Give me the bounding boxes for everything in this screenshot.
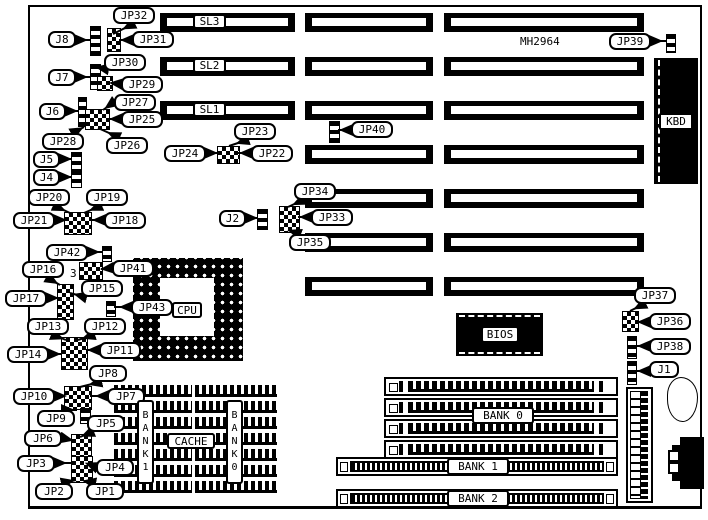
jumper-jp42 (102, 246, 112, 262)
label-j4: J4 (33, 169, 60, 186)
label-jp16: JP16 (22, 261, 64, 278)
isa-slot-segment (305, 277, 433, 296)
isa-slot-segment (444, 57, 644, 76)
chip-marking-mh2964: MH2964 (520, 36, 560, 48)
isa-slot-segment (444, 101, 644, 120)
label-jp36: JP36 (649, 313, 691, 330)
label-jp19: JP19 (86, 189, 128, 206)
jumper-jp31-jp32 (107, 28, 121, 52)
label-j5: J5 (33, 151, 60, 168)
jumper-jp29-jp30 (97, 76, 113, 91)
label-jp8: JP8 (89, 365, 127, 382)
label-jp9: JP9 (37, 410, 75, 427)
label-jp34: JP34 (294, 183, 336, 200)
isa-slot-segment (444, 13, 644, 32)
jumper-j1 (627, 361, 637, 385)
label-jp40: JP40 (351, 121, 393, 138)
jumper-jp39 (666, 34, 676, 53)
label-jp35: JP35 (289, 234, 331, 251)
isa-slot-segment (444, 277, 644, 296)
isa-slot-segment (305, 13, 433, 32)
label-jp27: JP27 (114, 94, 156, 111)
power-connector (626, 387, 653, 503)
jumper-jp36-jp37 (622, 311, 639, 332)
label-jp15: JP15 (81, 280, 123, 297)
label-bios: BIOS (481, 326, 519, 343)
label-jp24: JP24 (164, 145, 206, 162)
isa-slot-segment (160, 101, 295, 120)
jumper-jp22-jp24 (217, 146, 240, 164)
label-bank2: BANK 2 (447, 490, 509, 507)
label-j6: J6 (39, 103, 66, 120)
jumper-jp11-jp14 (61, 337, 88, 370)
label-jp20: JP20 (28, 189, 70, 206)
label-jp37: JP37 (634, 287, 676, 304)
jumper-jp33-jp35 (279, 206, 300, 233)
jumper-jp25-jp28 (85, 109, 110, 130)
isa-slot-segment (160, 13, 295, 32)
label-sl2: SL2 (193, 58, 226, 73)
label-jp12: JP12 (84, 318, 126, 335)
jumper-j8 (90, 26, 101, 56)
label-bank1: BANK 1 (447, 458, 509, 475)
label-jp31: JP31 (132, 31, 174, 48)
simm-socket (384, 377, 618, 396)
jumper-j5 (71, 152, 82, 170)
label-jp42: JP42 (46, 244, 88, 261)
label-cache: CACHE (167, 433, 215, 449)
label-jp32: JP32 (113, 7, 155, 24)
label-kbd: KBD (659, 113, 693, 130)
label-cpu: CPU (172, 302, 202, 318)
label-jp22: JP22 (251, 145, 293, 162)
label-jp6: JP6 (24, 430, 62, 447)
label-jp4: JP4 (96, 459, 134, 476)
label-sl3: SL3 (193, 14, 226, 29)
isa-slot-segment (444, 189, 644, 208)
label-jp14: JP14 (7, 346, 49, 363)
label-jp30: JP30 (104, 54, 146, 71)
jumper-jp41 (79, 262, 103, 280)
label-jp26: JP26 (106, 137, 148, 154)
label-j7: J7 (48, 69, 76, 86)
label-jp29: JP29 (121, 76, 163, 93)
jumper-jp43 (106, 301, 116, 317)
isa-slot-segment (305, 101, 433, 120)
label-jp25: JP25 (121, 111, 163, 128)
label-jp10: JP10 (13, 388, 55, 405)
label-jp2: JP2 (35, 483, 73, 500)
isa-slot-segment (305, 145, 433, 164)
label-jp41: JP41 (112, 260, 154, 277)
jumper-j4 (71, 170, 82, 188)
jumper-jp7-jp10 (64, 386, 92, 410)
label-cache-bank0: BANK0 (226, 400, 243, 484)
label-j2: J2 (219, 210, 246, 227)
label-jp39: JP39 (609, 33, 651, 50)
label-jp1: JP1 (86, 483, 124, 500)
pin-3-note: 3 (70, 268, 77, 280)
label-j1: J1 (649, 361, 679, 378)
isa-slot-segment (305, 57, 433, 76)
label-jp28: JP28 (42, 133, 84, 150)
jumper-j2 (257, 209, 268, 230)
isa-slot-segment (444, 145, 644, 164)
label-jp23: JP23 (234, 123, 276, 140)
jumper-jp38 (627, 336, 637, 359)
keyboard-din-connector (668, 437, 704, 489)
label-jp38: JP38 (649, 338, 691, 355)
label-j8: J8 (48, 31, 76, 48)
jumper-jp15-jp17 (57, 284, 74, 320)
jumper-jp40 (329, 121, 340, 143)
label-jp13: JP13 (27, 318, 69, 335)
label-jp11: JP11 (99, 342, 141, 359)
label-jp21: JP21 (13, 212, 55, 229)
motherboard-diagram: MH2964 3 (0, 0, 708, 520)
label-cache-bank1: BANK1 (137, 400, 154, 484)
label-jp43: JP43 (131, 299, 173, 316)
label-sl1: SL1 (193, 102, 226, 117)
label-bank0: BANK 0 (472, 407, 534, 424)
jumper-jp5-jp6 (71, 434, 92, 458)
label-jp17: JP17 (5, 290, 47, 307)
jumper-jp18-jp21 (64, 212, 92, 235)
label-jp5: JP5 (87, 415, 125, 432)
isa-slot-segment (444, 233, 644, 252)
label-jp18: JP18 (104, 212, 146, 229)
isa-slot-segment (160, 57, 295, 76)
jumper-jp1-jp4 (71, 456, 93, 483)
label-jp33: JP33 (311, 209, 353, 226)
label-jp3: JP3 (17, 455, 55, 472)
